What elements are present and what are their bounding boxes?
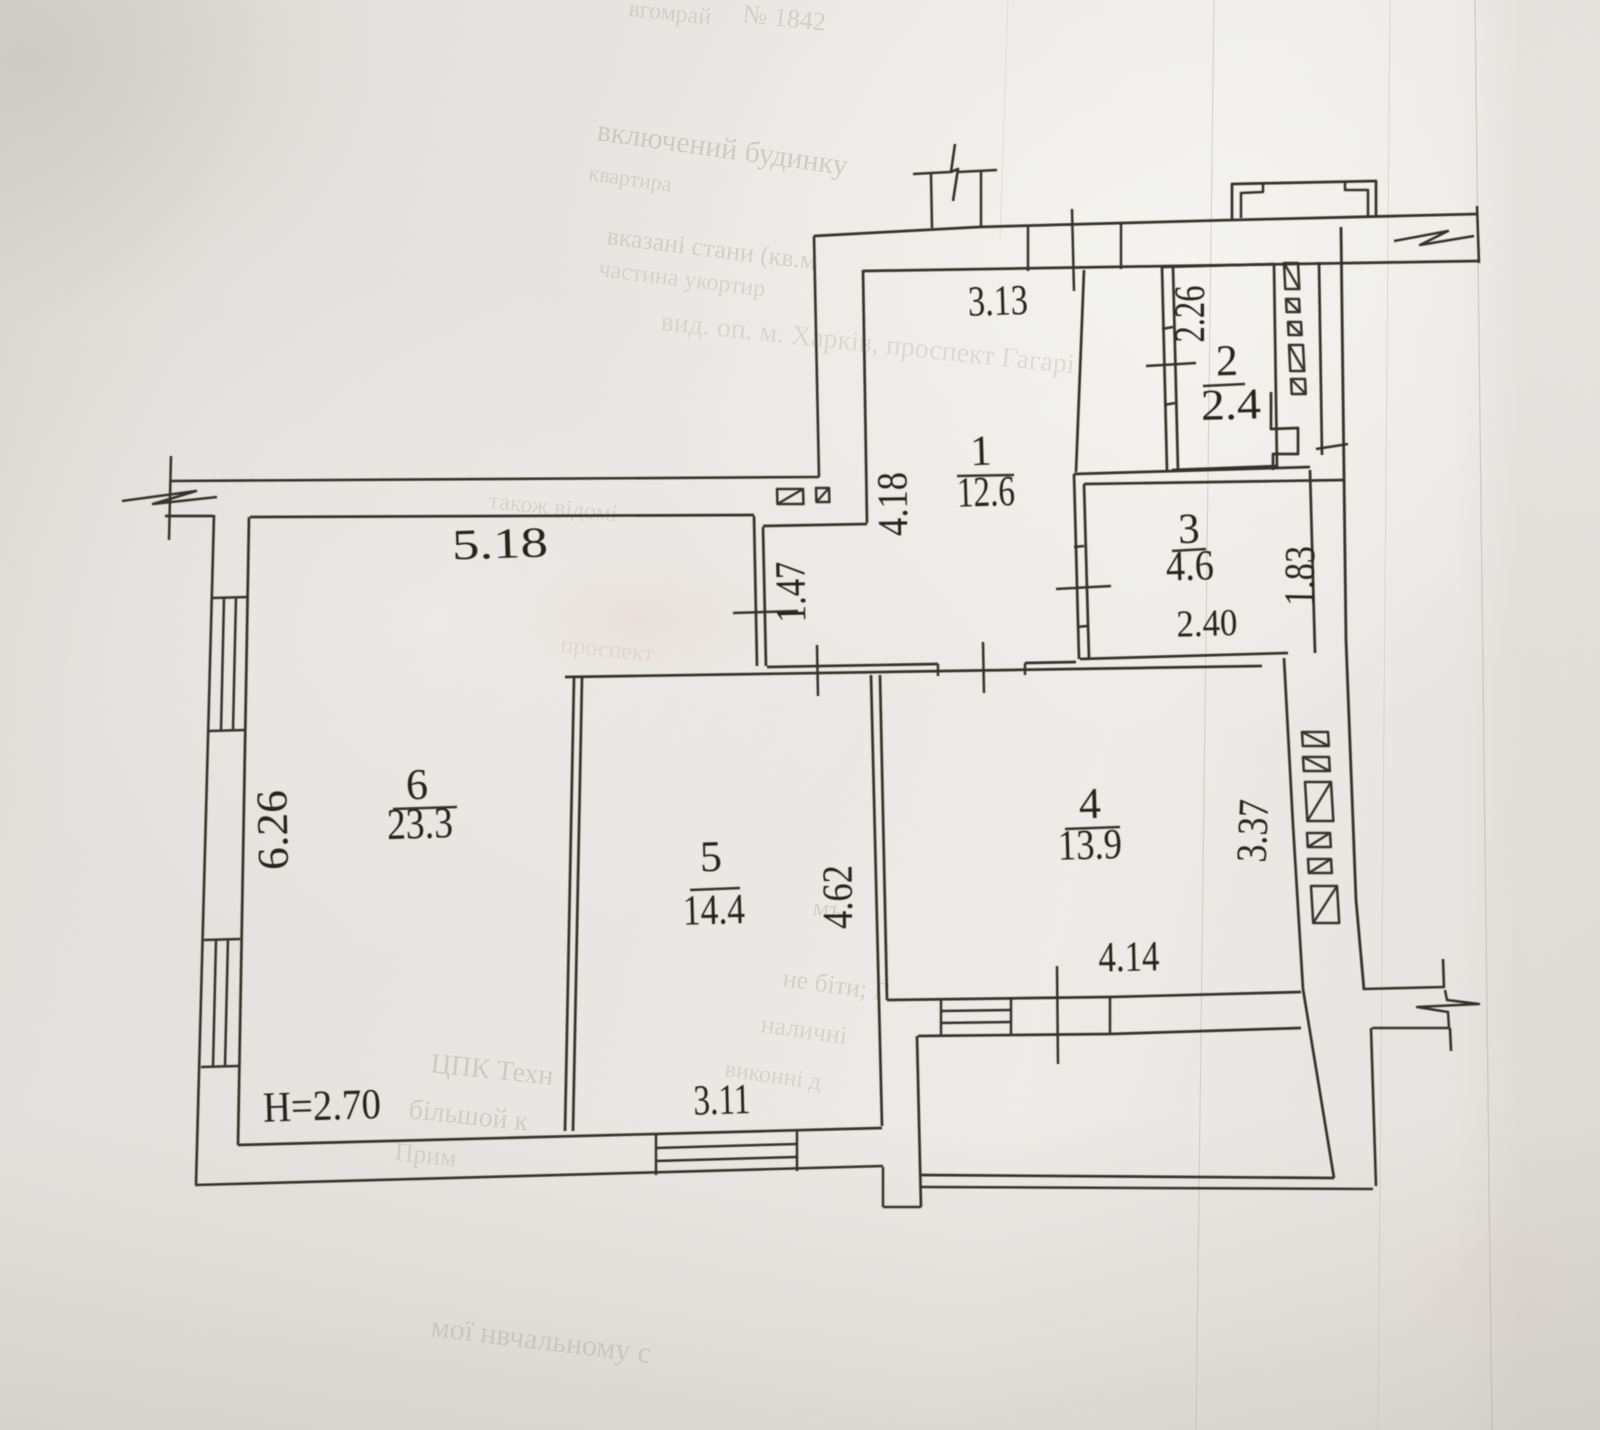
svg-text:3.13: 3.13 [967,277,1028,326]
svg-text:23.3: 23.3 [386,798,454,849]
svg-text:1.83: 1.83 [1276,546,1324,607]
svg-text:4.6: 4.6 [1165,542,1214,590]
svg-text:5.18: 5.18 [451,519,548,569]
svg-text:2.4: 2.4 [1200,379,1261,430]
svg-text:2: 2 [1215,336,1238,386]
svg-text:13.9: 13.9 [1057,821,1122,870]
svg-text:6.26: 6.26 [247,790,298,871]
svg-text:12.6: 12.6 [956,468,1015,517]
svg-text:2.40: 2.40 [1176,602,1238,646]
svg-text:5: 5 [699,832,722,882]
svg-text:4.14: 4.14 [1098,933,1160,981]
svg-text:4.18: 4.18 [869,472,917,537]
svg-text:H=2.70: H=2.70 [262,1081,381,1132]
svg-text:3.37: 3.37 [1229,798,1279,863]
svg-text:3.11: 3.11 [693,1076,751,1124]
svg-text:14.4: 14.4 [682,886,745,935]
svg-text:1.47: 1.47 [767,561,815,623]
svg-text:4.62: 4.62 [815,865,863,929]
svg-text:2.26: 2.26 [1167,286,1214,343]
